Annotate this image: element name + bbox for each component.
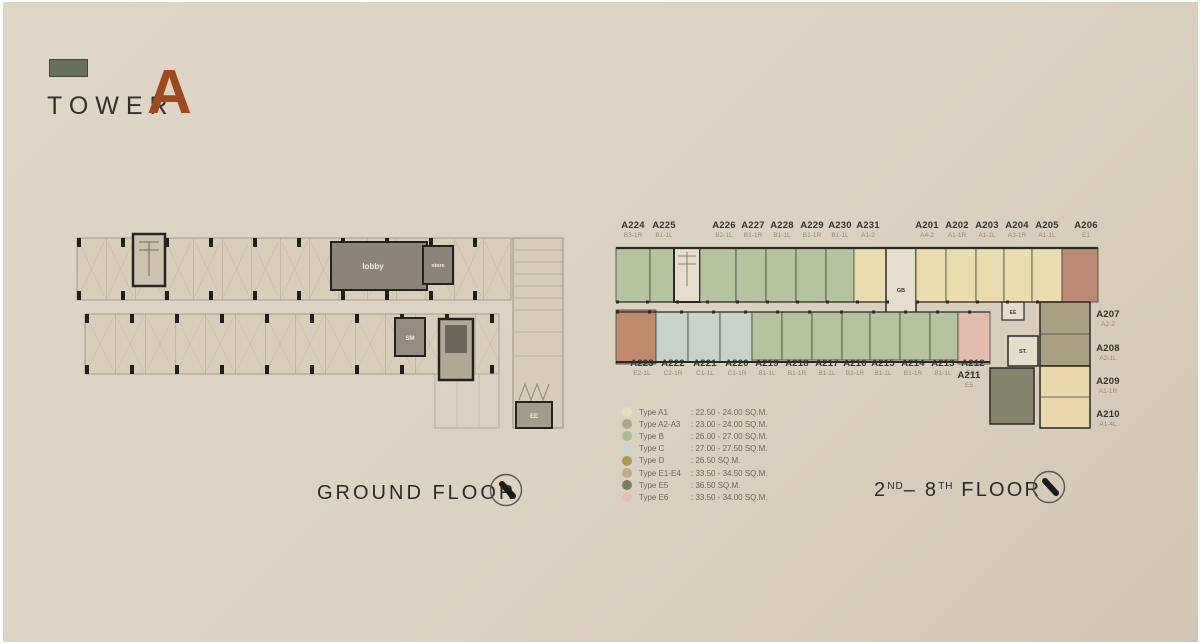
legend-color-dot xyxy=(622,456,632,466)
unit-number: A201 xyxy=(915,221,939,232)
unit-label: A227 B1-1R xyxy=(741,221,765,239)
lobby-block: lobby store xyxy=(331,242,453,290)
unit-type-legend: Type A1 : 22.50 - 24.00 SQ.M. Type A2-A3… xyxy=(622,406,767,504)
unit-type-code: B1-1R xyxy=(785,370,809,377)
unit-label: A220 C1-1R xyxy=(725,359,749,377)
unit-number: A203 xyxy=(975,221,999,232)
unit-type-code: B1-1R xyxy=(843,370,867,377)
legend-type-label: Type E1-E4 xyxy=(639,469,691,478)
unit-A231 xyxy=(854,248,886,302)
legend-area-range: : 33.50 - 34.00 SQ.M. xyxy=(691,493,767,502)
unit-type-code: B1-1R xyxy=(800,232,824,239)
unit-A202 xyxy=(946,248,976,302)
unit-number: A207 xyxy=(1096,310,1120,321)
unit-number: A212 xyxy=(961,359,985,370)
unit-number: A206 xyxy=(1074,221,1098,232)
store-label: store xyxy=(431,263,444,269)
sm-room: SM xyxy=(395,318,425,356)
unit-label: A225 B1-1L xyxy=(652,221,676,239)
unit-number: A216 xyxy=(843,359,867,370)
unit-A205 xyxy=(1032,248,1062,302)
sm-room-label: SM xyxy=(406,336,415,342)
unit-type-code: B1-1L xyxy=(755,370,779,377)
legend-type-label: Type E5 xyxy=(639,481,691,490)
unit-label-a211: A211 E5 xyxy=(958,371,981,389)
gb-room-label: GB xyxy=(897,288,905,294)
unit-number: A204 xyxy=(1005,221,1029,232)
unit-label: A209 A1-1R xyxy=(1096,377,1120,395)
unit-label: A230 B1-1L xyxy=(828,221,852,239)
bottom-unit-band xyxy=(616,310,990,364)
legend-area-range: : 33.50 - 34.50 SQ.M. xyxy=(691,469,767,478)
unit-type-code: A1-1R xyxy=(945,232,969,239)
title-color-swatch xyxy=(49,59,88,77)
service-core xyxy=(439,319,473,380)
legend-area-range: : 26.00 - 27.00 SQ.M. xyxy=(691,432,767,441)
unit-number: A224 xyxy=(621,221,645,232)
unit-number: A214 xyxy=(901,359,925,370)
unit-A201 xyxy=(916,248,946,302)
unit-label: A201 A4-2 xyxy=(915,221,939,239)
unit-label: A208 A2-1L xyxy=(1096,344,1120,362)
unit-label: A216 B1-1R xyxy=(843,359,867,377)
unit-label: A210 A1-4L xyxy=(1096,410,1120,428)
unit-label: A221 C1-1L xyxy=(693,359,717,377)
unit-type-code: E5 xyxy=(958,382,981,389)
unit-number: A228 xyxy=(770,221,794,232)
unit-A212 xyxy=(958,312,990,364)
unit-A229 xyxy=(796,248,826,302)
legend-color-dot xyxy=(622,480,632,490)
right-service-wing: EE xyxy=(513,238,563,428)
floor-ordinal: TH xyxy=(938,481,953,492)
unit-label: A229 B1-1R xyxy=(800,221,824,239)
unit-number: A211 xyxy=(958,371,981,382)
unit-A223 xyxy=(616,310,656,364)
ground-floor-plan: EE lobby store SM xyxy=(75,232,570,437)
upper-floor-caption: 2ND– 8TH FLOOR xyxy=(874,479,1041,502)
parking-row-bottom xyxy=(85,314,499,374)
ee-room-upper-label: EE xyxy=(1010,310,1017,316)
unit-A219 xyxy=(752,312,782,360)
unit-A230 xyxy=(826,248,854,302)
unit-type-code: B1-1L xyxy=(828,232,852,239)
right-core-and-wing: EE ST. xyxy=(990,302,1090,428)
unit-type-code: C2-1R xyxy=(661,370,685,377)
unit-number: A217 xyxy=(815,359,839,370)
unit-label: A218 B1-1R xyxy=(785,359,809,377)
unit-A228 xyxy=(766,248,796,302)
legend-row: Type E5 : 36.50 SQ.M. xyxy=(622,479,767,491)
unit-type-code: B3-1R xyxy=(621,232,645,239)
unit-A227 xyxy=(736,248,766,302)
legend-area-range: : 26.50 SQ.M. xyxy=(691,456,740,465)
lobby-label: lobby xyxy=(362,262,384,271)
unit-A206 xyxy=(1062,248,1098,302)
unit-type-code: B1-1L xyxy=(931,370,955,377)
compass-icon xyxy=(488,472,524,508)
unit-type-code: A2-1L xyxy=(1096,355,1120,362)
unit-type-code: A3-1R xyxy=(1005,232,1029,239)
unit-number: A218 xyxy=(785,359,809,370)
unit-number: A227 xyxy=(741,221,765,232)
legend-type-label: Type B xyxy=(639,432,691,441)
unit-A220 xyxy=(720,312,752,362)
unit-label: A213 B1-1L xyxy=(931,359,955,377)
legend-type-label: Type C xyxy=(639,444,691,453)
entry-core xyxy=(886,248,916,320)
unit-label: A231 A1-2 xyxy=(856,221,880,239)
unit-type-code: B2-1L xyxy=(712,232,736,239)
unit-number: A231 xyxy=(856,221,880,232)
unit-number: A219 xyxy=(755,359,779,370)
unit-type-code: A1-1L xyxy=(975,232,999,239)
unit-A217 xyxy=(812,312,842,360)
floor-num: 2 xyxy=(874,479,887,501)
stair-room-label: ST. xyxy=(1019,349,1027,355)
unit-number: A225 xyxy=(652,221,676,232)
unit-number: A210 xyxy=(1096,410,1120,421)
lower-extension xyxy=(435,374,499,428)
unit-label: A224 B3-1R xyxy=(621,221,645,239)
unit-type-code: B1-1R xyxy=(741,232,765,239)
ee-room-label: EE xyxy=(530,414,538,420)
unit-A218 xyxy=(782,312,812,360)
legend-color-dot xyxy=(622,444,632,454)
unit-type-code: A1-1L xyxy=(1035,232,1059,239)
ground-floor-caption: GROUND FLOOR xyxy=(317,482,516,505)
legend-area-range: : 36.50 SQ.M. xyxy=(691,481,740,490)
unit-number: A220 xyxy=(725,359,749,370)
legend-color-dot xyxy=(622,431,632,441)
unit-A213 xyxy=(930,312,958,360)
unit-number: A229 xyxy=(800,221,824,232)
legend-row: Type E6 : 33.50 - 34.00 SQ.M. xyxy=(622,491,767,503)
unit-type-code: E1 xyxy=(1074,232,1098,239)
floor-word: FLOOR xyxy=(954,479,1042,501)
unit-type-code: E2-1L xyxy=(630,370,654,377)
unit-A224 xyxy=(616,248,650,302)
unit-label: A222 C2-1R xyxy=(661,359,685,377)
unit-number: A202 xyxy=(945,221,969,232)
legend-color-dot xyxy=(622,407,632,417)
legend-area-range: : 27.00 - 27.50 SQ.M. xyxy=(691,444,767,453)
unit-A221 xyxy=(688,312,720,362)
unit-type-code: B1-1L xyxy=(770,232,794,239)
legend-type-label: Type D xyxy=(639,456,691,465)
unit-type-code: A2-2 xyxy=(1096,321,1120,328)
unit-A215 xyxy=(870,312,900,360)
legend-color-dot xyxy=(622,492,632,502)
unit-number: A205 xyxy=(1035,221,1059,232)
unit-type-code: B1-1L xyxy=(652,232,676,239)
unit-label: A202 A1-1R xyxy=(945,221,969,239)
top-unit-band xyxy=(616,248,1098,320)
legend-row: Type A2-A3 : 23.00 - 24.00 SQ.M. xyxy=(622,418,767,430)
unit-number: A208 xyxy=(1096,344,1120,355)
unit-A211 xyxy=(990,368,1034,424)
unit-label: A204 A3-1R xyxy=(1005,221,1029,239)
unit-A222 xyxy=(656,312,688,362)
floor-ordinal: ND xyxy=(887,481,903,492)
unit-label: A206 E1 xyxy=(1074,221,1098,239)
unit-number: A221 xyxy=(693,359,717,370)
unit-label: A228 B1-1L xyxy=(770,221,794,239)
unit-type-code: A1-4L xyxy=(1096,421,1120,428)
legend-color-dot xyxy=(622,468,632,478)
legend-row: Type E1-E4 : 33.50 - 34.50 SQ.M. xyxy=(622,467,767,479)
unit-A203 xyxy=(976,248,1004,302)
legend-type-label: Type A2-A3 xyxy=(639,420,691,429)
floor-dash: – xyxy=(904,479,925,501)
unit-A226 xyxy=(700,248,736,302)
unit-label: A203 A1-1L xyxy=(975,221,999,239)
unit-type-code: B1-1R xyxy=(901,370,925,377)
unit-label: A215 B1-1L xyxy=(871,359,895,377)
unit-number: A215 xyxy=(871,359,895,370)
unit-number: A209 xyxy=(1096,377,1120,388)
unit-label: A205 A1-1L xyxy=(1035,221,1059,239)
unit-label: A223 E2-1L xyxy=(630,359,654,377)
page-title-letter-a: A xyxy=(147,62,192,124)
unit-A214 xyxy=(900,312,930,360)
legend-row: Type D : 26.50 SQ.M. xyxy=(622,455,767,467)
unit-number: A223 xyxy=(630,359,654,370)
unit-number: A213 xyxy=(931,359,955,370)
legend-area-range: : 23.00 - 24.00 SQ.M. xyxy=(691,420,767,429)
unit-type-code: B1-1L xyxy=(871,370,895,377)
legend-row: Type A1 : 22.50 - 24.00 SQ.M. xyxy=(622,406,767,418)
unit-label: A226 B2-1L xyxy=(712,221,736,239)
unit-label: A207 A2-2 xyxy=(1096,310,1120,328)
legend-type-label: Type A1 xyxy=(639,408,691,417)
unit-type-code: B1-1L xyxy=(815,370,839,377)
unit-type-code: A1-2 xyxy=(856,232,880,239)
unit-A225 xyxy=(650,248,674,302)
unit-A204 xyxy=(1004,248,1032,302)
compass-icon xyxy=(1031,469,1067,505)
legend-color-dot xyxy=(622,419,632,429)
unit-number: A230 xyxy=(828,221,852,232)
legend-type-label: Type E6 xyxy=(639,493,691,502)
stair-core xyxy=(133,234,165,286)
legend-row: Type B : 26.00 - 27.00 SQ.M. xyxy=(622,430,767,442)
unit-type-code: A1-1R xyxy=(1096,388,1120,395)
legend-row: Type C : 27.00 - 27.50 SQ.M. xyxy=(622,443,767,455)
unit-label: A217 B1-1L xyxy=(815,359,839,377)
unit-type-code: C1-1L xyxy=(693,370,717,377)
unit-label: A219 B1-1L xyxy=(755,359,779,377)
unit-type-code: A4-2 xyxy=(915,232,939,239)
legend-area-range: : 22.50 - 24.00 SQ.M. xyxy=(691,408,767,417)
unit-A216 xyxy=(842,312,870,360)
floor-num: 8 xyxy=(925,479,938,501)
unit-number: A226 xyxy=(712,221,736,232)
unit-number: A222 xyxy=(661,359,685,370)
unit-label: A214 B1-1R xyxy=(901,359,925,377)
unit-type-code: C1-1R xyxy=(725,370,749,377)
